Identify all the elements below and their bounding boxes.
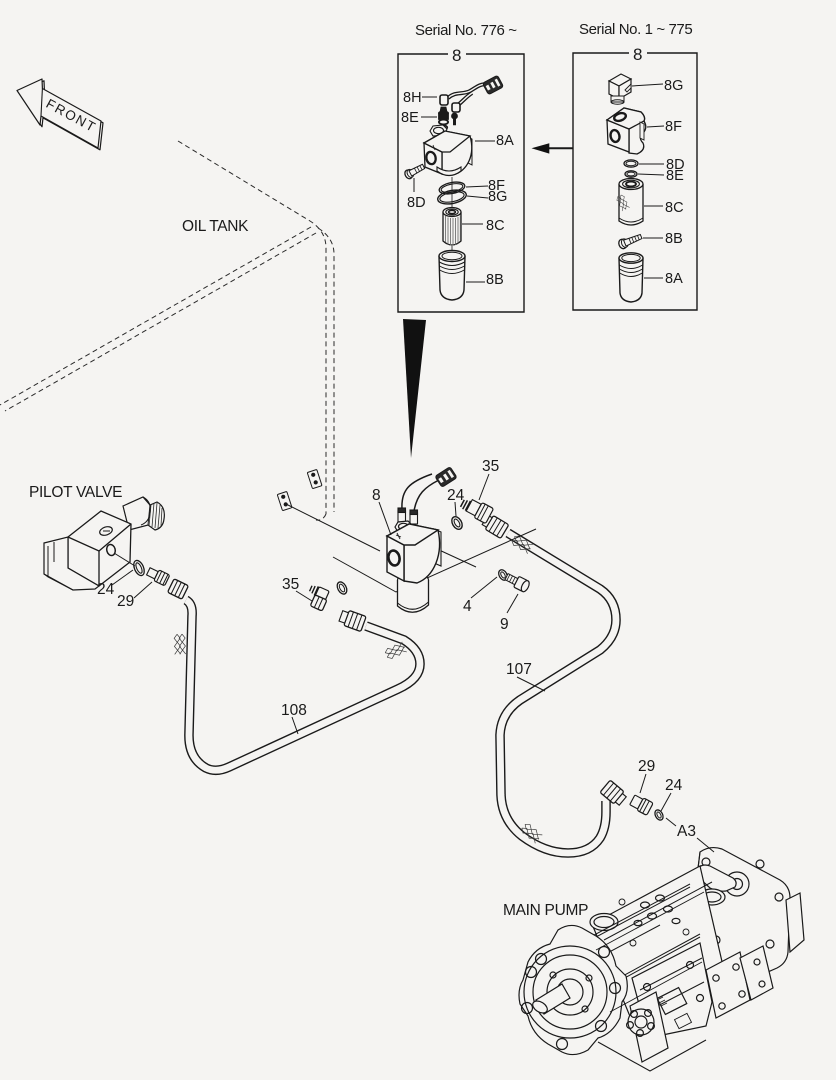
svg-text:8F: 8F xyxy=(665,119,682,135)
svg-text:107: 107 xyxy=(506,661,532,678)
svg-text:8: 8 xyxy=(452,46,461,65)
svg-text:Serial No. 1 ~ 775: Serial No. 1 ~ 775 xyxy=(579,21,692,38)
svg-text:8E: 8E xyxy=(666,168,684,184)
svg-text:8G: 8G xyxy=(664,78,683,94)
svg-text:8C: 8C xyxy=(486,218,505,234)
svg-text:8E: 8E xyxy=(401,110,419,126)
svg-text:29: 29 xyxy=(638,758,655,775)
svg-text:29: 29 xyxy=(117,593,134,610)
svg-text:Serial No. 776 ~: Serial No. 776 ~ xyxy=(415,22,517,39)
svg-text:4: 4 xyxy=(463,598,472,615)
svg-text:8D: 8D xyxy=(407,195,426,211)
svg-text:35: 35 xyxy=(482,458,499,475)
svg-text:8B: 8B xyxy=(665,231,683,247)
svg-text:8H: 8H xyxy=(403,90,422,106)
svg-text:8: 8 xyxy=(633,45,642,64)
svg-text:108: 108 xyxy=(281,702,307,719)
svg-text:35: 35 xyxy=(282,576,299,593)
svg-text:8: 8 xyxy=(372,487,381,504)
svg-text:24: 24 xyxy=(97,581,115,598)
svg-text:A3: A3 xyxy=(677,823,696,840)
svg-text:PILOT VALVE: PILOT VALVE xyxy=(29,484,122,501)
svg-text:OIL TANK: OIL TANK xyxy=(182,218,249,235)
svg-text:MAIN PUMP: MAIN PUMP xyxy=(503,902,588,919)
svg-text:8A: 8A xyxy=(665,271,683,287)
svg-text:8B: 8B xyxy=(486,272,504,288)
svg-text:8C: 8C xyxy=(665,200,684,216)
svg-text:8A: 8A xyxy=(496,133,514,149)
svg-text:9: 9 xyxy=(500,616,509,633)
svg-text:8G: 8G xyxy=(488,189,507,205)
svg-text:24: 24 xyxy=(665,777,683,794)
svg-text:24: 24 xyxy=(447,487,465,504)
